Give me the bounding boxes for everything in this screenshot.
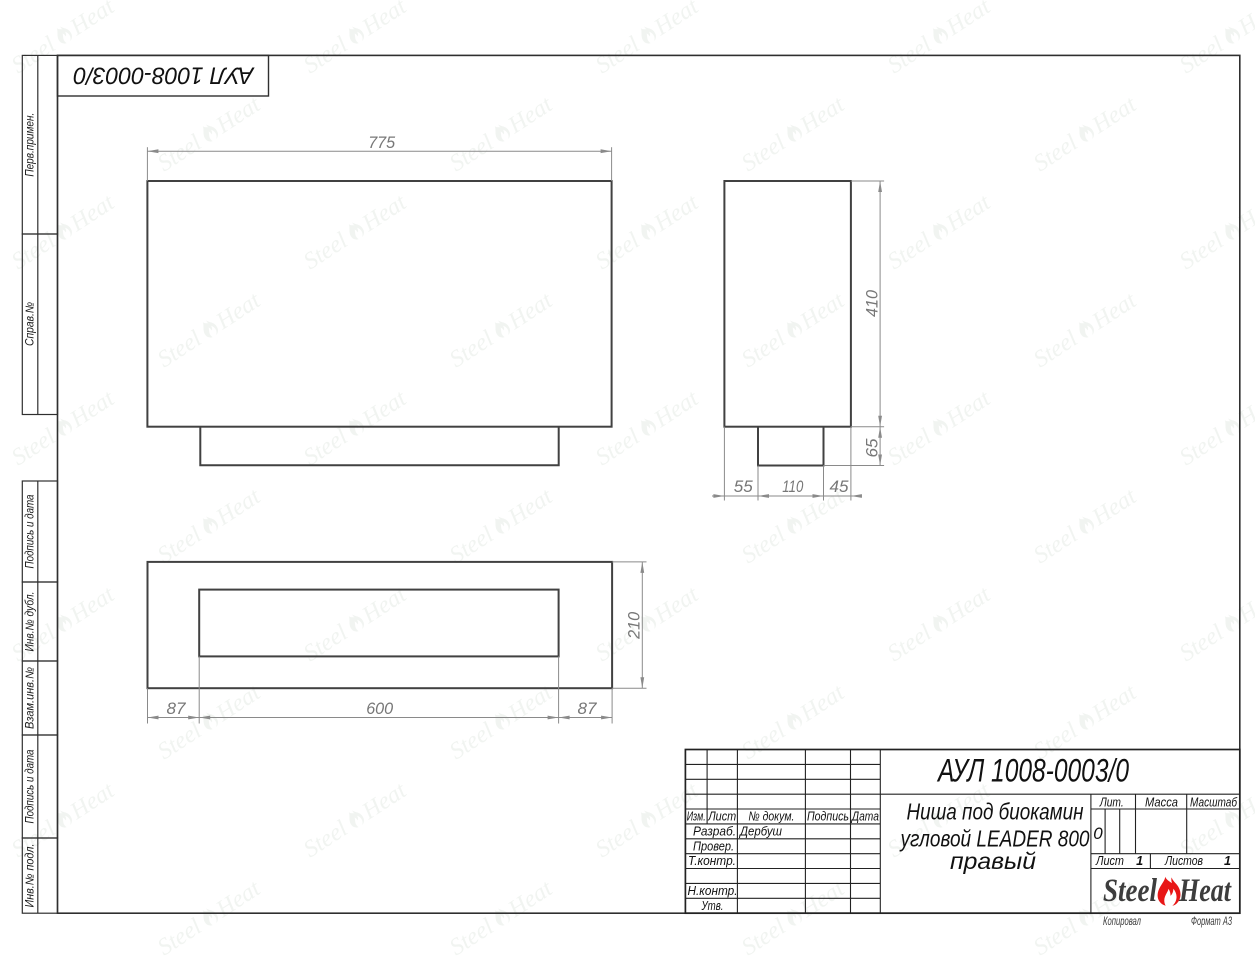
svg-text:Инв.№ подл.: Инв.№ подл. [25,844,37,908]
svg-text:Формат А3: Формат А3 [1191,916,1232,928]
svg-text:Т.контр.: Т.контр. [688,853,736,868]
svg-text:Разраб.: Разраб. [693,824,736,839]
svg-text:Провер.: Провер. [693,838,734,853]
svg-text:45: 45 [830,477,850,496]
svg-text:Справ.№: Справ.№ [25,302,37,346]
svg-text:65: 65 [863,438,882,458]
svg-text:АУЛ 1008-0003/0: АУЛ 1008-0003/0 [936,753,1129,789]
svg-text:АУЛ 1008-0003/0: АУЛ 1008-0003/0 [73,61,256,88]
svg-text:Инв.№ дубл.: Инв.№ дубл. [25,592,37,652]
svg-text:№ докум.: № докум. [748,809,794,824]
svg-text:55: 55 [734,477,754,496]
svg-text:Утв.: Утв. [701,898,724,913]
svg-text:87: 87 [167,699,187,718]
svg-text:0: 0 [1093,824,1103,843]
svg-text:Лит.: Лит. [1099,795,1124,810]
svg-text:600: 600 [366,699,394,718]
svg-text:Дербуш: Дербуш [738,824,782,839]
svg-text:Подпись: Подпись [807,809,849,824]
svg-text:Дата: Дата [850,809,879,824]
svg-text:Н.контр.: Н.контр. [688,883,738,898]
svg-text:87: 87 [578,699,598,718]
svg-text:Листов: Листов [1164,853,1203,868]
svg-text:Масса: Масса [1145,795,1178,810]
svg-text:110: 110 [782,477,803,496]
svg-text:210: 210 [625,611,644,639]
svg-text:Ниша под биокамин: Ниша под биокамин [907,798,1084,824]
svg-text:Steel: Steel [1103,873,1158,909]
svg-text:Изм.: Изм. [687,809,706,824]
svg-text:410: 410 [863,289,882,317]
svg-text:Перв.примен.: Перв.примен. [25,113,37,177]
svg-text:Подпись и дата: Подпись и дата [25,750,37,824]
svg-text:1: 1 [1224,853,1231,868]
svg-text:Лист: Лист [1095,853,1124,868]
svg-text:Лист: Лист [707,809,736,824]
svg-text:1: 1 [1136,853,1143,868]
svg-text:Heat: Heat [1178,873,1231,909]
svg-text:Взам.инв.№: Взам.инв.№ [25,666,37,729]
svg-text:775: 775 [368,133,396,152]
svg-text:Подпись и дата: Подпись и дата [25,495,37,569]
svg-text:Копировал: Копировал [1103,916,1141,928]
svg-text:правый: правый [950,848,1036,874]
svg-text:Масштаб: Масштаб [1190,795,1238,810]
